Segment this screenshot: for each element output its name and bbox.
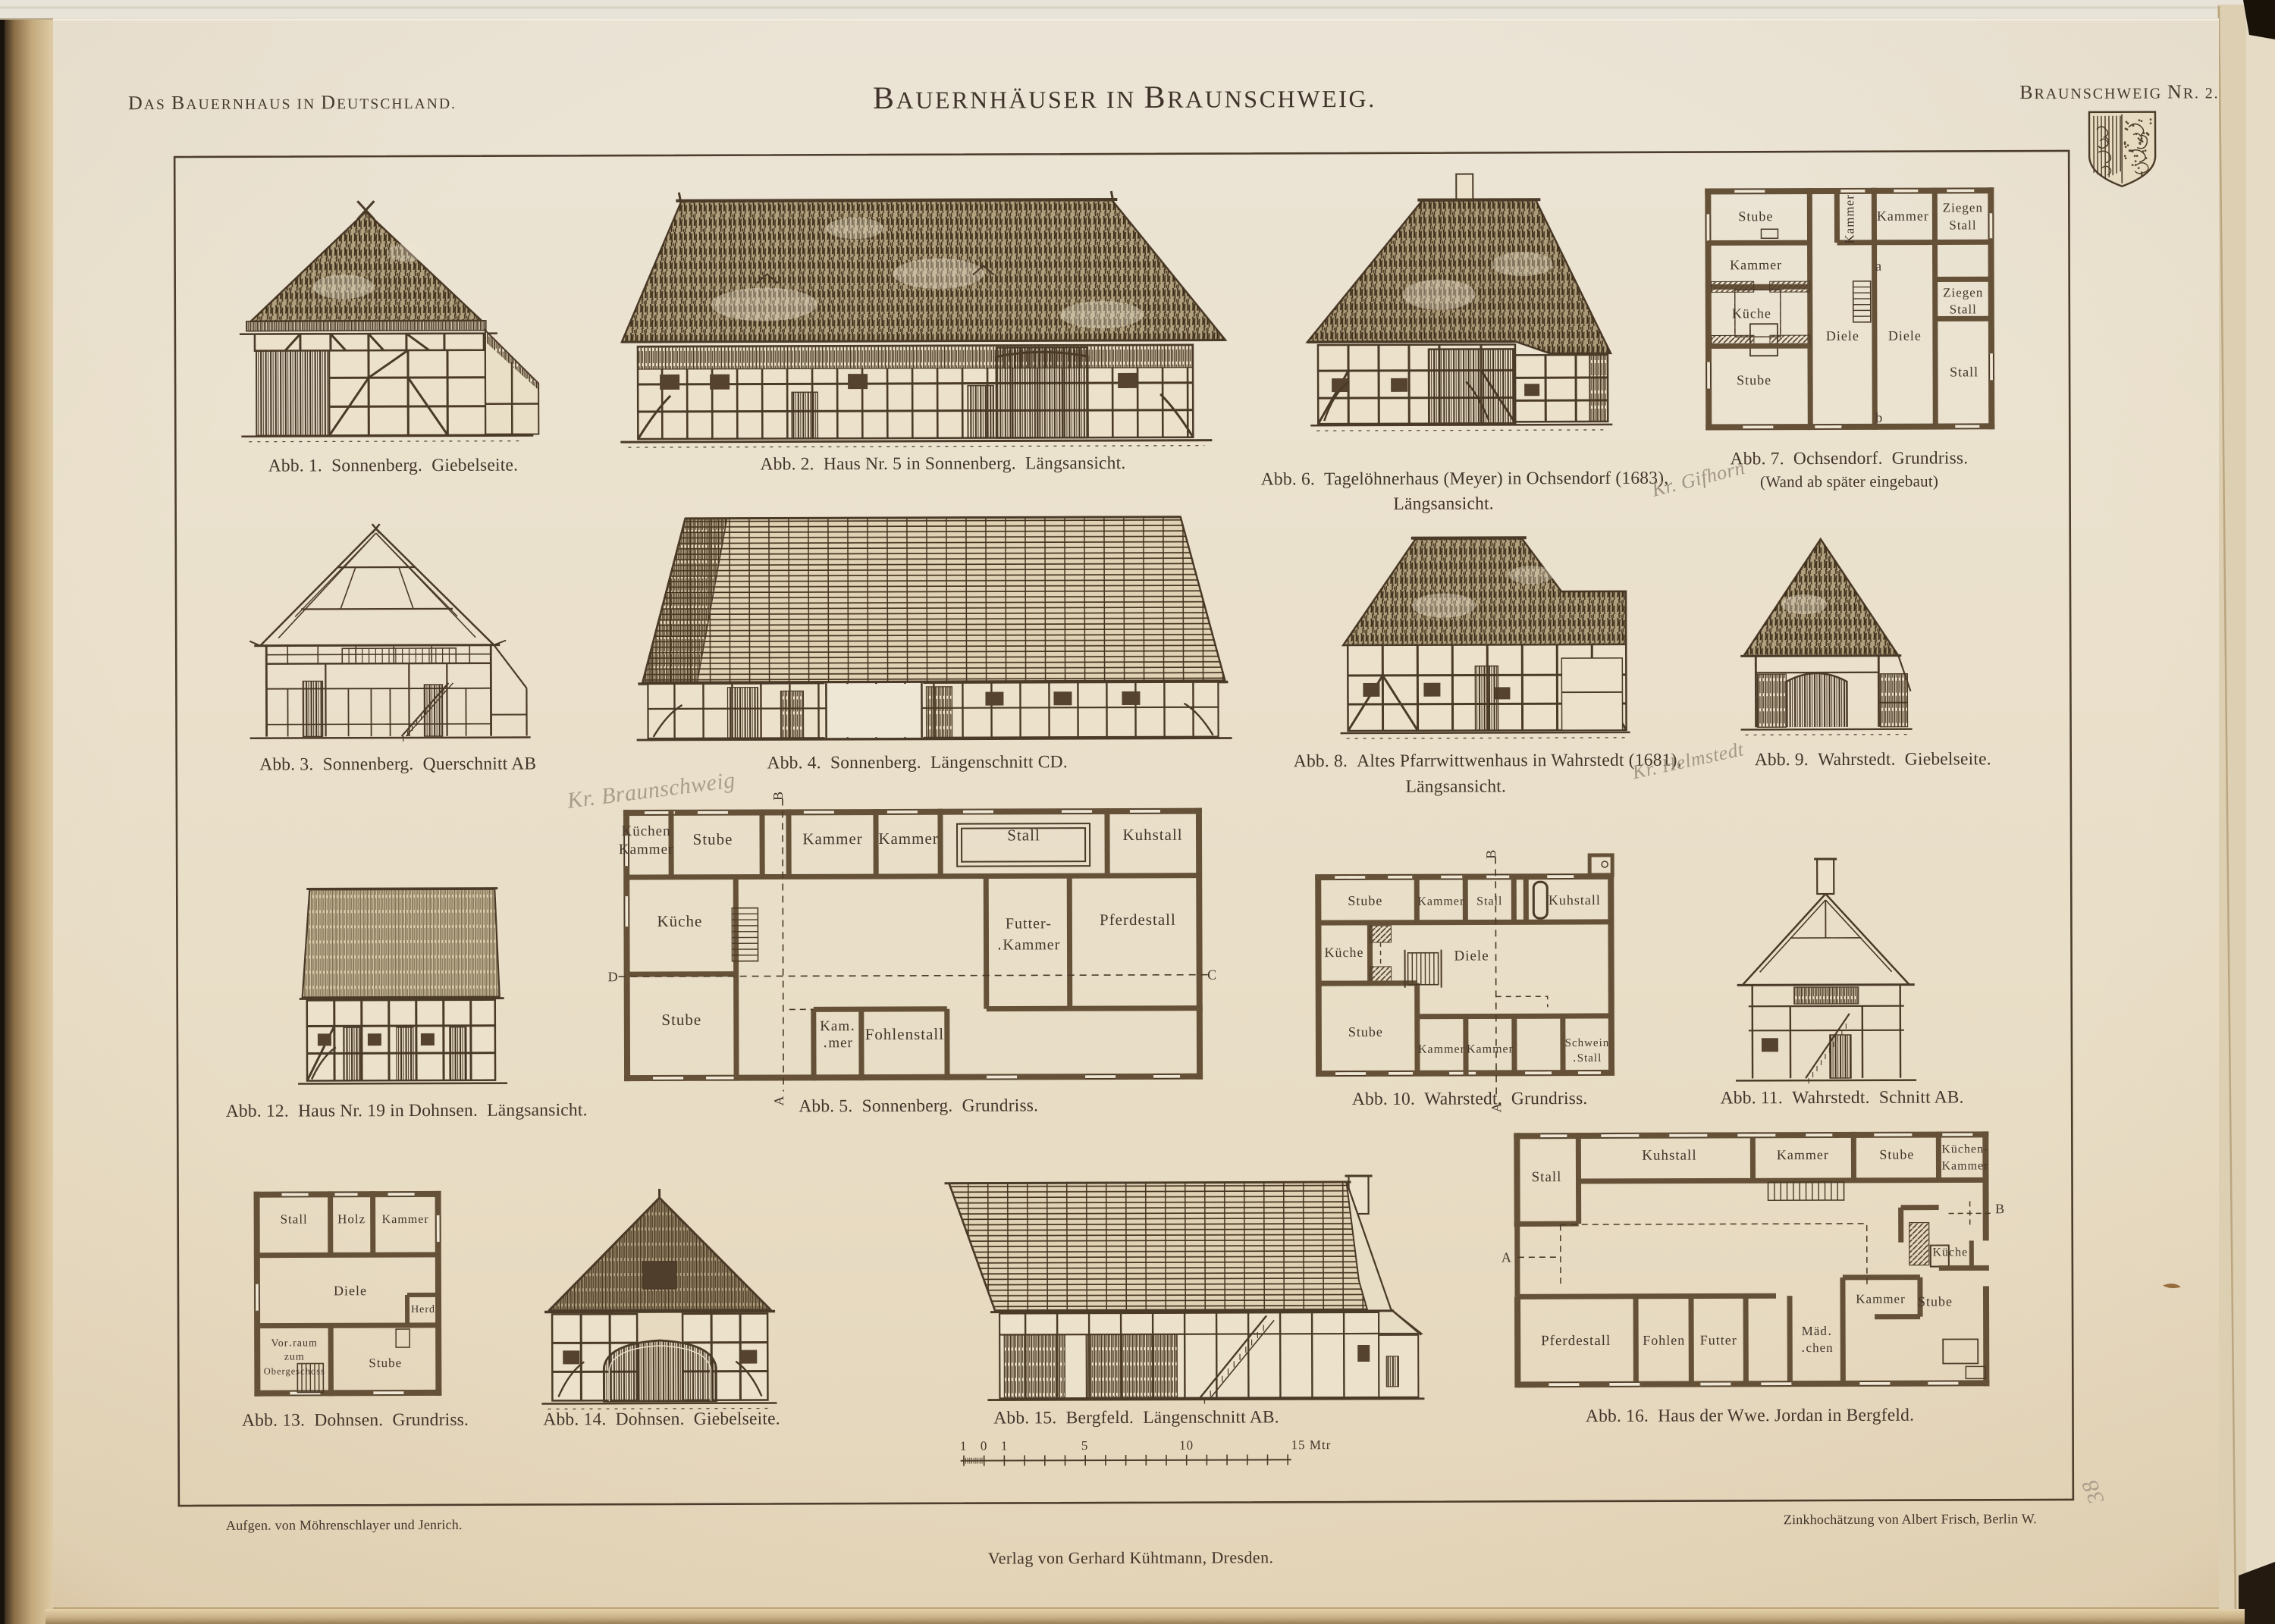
svg-text:Abb. 7. Ochsendorf. Grundris: Abb. 7. Ochsendorf. Grundriss. bbox=[1730, 448, 1968, 469]
svg-text:Abb. 14. Dohnsen. Giebelseit: Abb. 14. Dohnsen. Giebelseite. bbox=[543, 1409, 780, 1429]
svg-text:Stube: Stube bbox=[1918, 1293, 1953, 1309]
svg-text:B: B bbox=[1995, 1201, 2005, 1216]
svg-text:Stube: Stube bbox=[1879, 1147, 1914, 1162]
svg-text:A: A bbox=[771, 1095, 786, 1105]
svg-text:Kammer: Kammer bbox=[1417, 895, 1464, 908]
svg-text:Obergeschoss: Obergeschoss bbox=[264, 1365, 325, 1376]
svg-text:Stube: Stube bbox=[1348, 893, 1382, 908]
svg-text:Stube: Stube bbox=[661, 1011, 701, 1029]
svg-text:B: B bbox=[1483, 849, 1498, 859]
svg-text:Kammer: Kammer bbox=[1941, 1159, 1988, 1172]
svg-text:Stube: Stube bbox=[693, 830, 733, 848]
svg-text:Holz: Holz bbox=[337, 1212, 366, 1226]
svg-text:0: 0 bbox=[981, 1439, 988, 1453]
svg-text:Abb. 2. Haus Nr. 5 in Sonnenb: Abb. 2. Haus Nr. 5 in Sonnenberg. Längsa… bbox=[760, 453, 1125, 475]
svg-text:(Wand ab später eingebaut): (Wand ab später eingebaut) bbox=[1760, 472, 1938, 491]
svg-text:Abb. 11. Wahrstedt. Schnitt: Abb. 11. Wahrstedt. Schnitt AB. bbox=[1721, 1087, 1964, 1108]
svg-text:Diele: Diele bbox=[1454, 948, 1489, 964]
svg-text:Stube: Stube bbox=[369, 1356, 402, 1370]
svg-text:Schwein: Schwein bbox=[1565, 1037, 1610, 1049]
svg-text:a: a bbox=[1875, 259, 1882, 274]
svg-text:1: 1 bbox=[960, 1439, 968, 1453]
svg-text:Kammer: Kammer bbox=[1467, 1042, 1514, 1055]
svg-text:․Stall: ․Stall bbox=[1573, 1052, 1602, 1064]
svg-text:Kuhstall: Kuhstall bbox=[1642, 1148, 1696, 1164]
svg-text:10: 10 bbox=[1179, 1438, 1194, 1453]
svg-text:A: A bbox=[1501, 1249, 1512, 1265]
svg-text:Pferdestall: Pferdestall bbox=[1541, 1333, 1611, 1349]
svg-text:1: 1 bbox=[1001, 1438, 1009, 1453]
svg-text:Kammer: Kammer bbox=[1856, 1292, 1906, 1306]
svg-text:5: 5 bbox=[1081, 1438, 1089, 1453]
svg-text:Kammer: Kammer bbox=[1777, 1147, 1829, 1162]
svg-text:Kammer: Kammer bbox=[382, 1213, 429, 1226]
svg-text:Stall: Stall bbox=[1532, 1169, 1562, 1185]
svg-text:Stube: Stube bbox=[1738, 208, 1773, 224]
svg-text:Abb. 4. Sonnenberg. Längensc: Abb. 4. Sonnenberg. Längenschnitt CD. bbox=[767, 752, 1067, 773]
svg-text:Ziegen: Ziegen bbox=[1943, 200, 1983, 215]
svg-text:Abb. 10. Wahrstedt. Grundris: Abb. 10. Wahrstedt. Grundriss. bbox=[1352, 1089, 1588, 1109]
svg-text:Abb. 15. Bergfeld. Längensch: Abb. 15. Bergfeld. Längenschnitt AB. bbox=[993, 1407, 1279, 1428]
svg-text:D: D bbox=[608, 969, 619, 984]
svg-text:Längsansicht.: Längsansicht. bbox=[1393, 494, 1494, 513]
svg-text:Kam․: Kam․ bbox=[820, 1018, 855, 1034]
svg-text:Stall: Stall bbox=[1950, 302, 1977, 316]
svg-text:Kammer: Kammer bbox=[619, 842, 674, 857]
svg-text:Kuhstall: Kuhstall bbox=[1122, 826, 1182, 844]
svg-text:Diele: Diele bbox=[334, 1283, 367, 1298]
svg-text:Ziegen: Ziegen bbox=[1943, 285, 1983, 299]
svg-text:Abb. 9. Wahrstedt. Giebelsei: Abb. 9. Wahrstedt. Giebelseite. bbox=[1755, 749, 1991, 770]
svg-text:Futter: Futter bbox=[1700, 1332, 1737, 1347]
svg-text:Futter-: Futter- bbox=[1006, 915, 1052, 932]
svg-text:Küche: Küche bbox=[657, 912, 702, 930]
svg-text:Verlag von Gerhard Kühtmann, D: Verlag von Gerhard Kühtmann, Dresden. bbox=[988, 1547, 1274, 1567]
svg-text:․Kammer: ․Kammer bbox=[997, 936, 1061, 953]
svg-text:Zinkhochätzung von Albert Fris: Zinkhochätzung von Albert Frisch, Berlin… bbox=[1784, 1511, 2037, 1527]
svg-text:15 Mtr: 15 Mtr bbox=[1291, 1437, 1332, 1452]
svg-text:Stall: Stall bbox=[281, 1212, 308, 1226]
svg-text:Kammer: Kammer bbox=[1877, 208, 1929, 224]
svg-text:Pferdestall: Pferdestall bbox=[1100, 911, 1176, 929]
svg-text:Stall: Stall bbox=[1476, 895, 1502, 908]
svg-text:Fohlen: Fohlen bbox=[1643, 1333, 1685, 1348]
svg-text:Abb. 8. Altes Pfarrwittwenhau: Abb. 8. Altes Pfarrwittwenhaus in Wahrst… bbox=[1294, 751, 1682, 772]
svg-text:Abb. 16. Haus der Wwe. Jordan: Abb. 16. Haus der Wwe. Jordan in Bergfel… bbox=[1586, 1406, 1914, 1426]
svg-text:Küche: Küche bbox=[1732, 306, 1771, 321]
svg-text:Diele: Diele bbox=[1826, 328, 1859, 343]
svg-text:Abb. 3. Sonnenberg. Querschn: Abb. 3. Sonnenberg. Querschnitt AB bbox=[259, 754, 536, 774]
svg-text:Abb. 13. Dohnsen. Grundriss.: Abb. 13. Dohnsen. Grundriss. bbox=[242, 1410, 469, 1431]
svg-text:Küchen-: Küchen- bbox=[1941, 1143, 1988, 1155]
svg-text:Stall: Stall bbox=[1950, 364, 1978, 379]
svg-text:Kammer: Kammer bbox=[1730, 257, 1782, 272]
svg-text:Stall: Stall bbox=[1949, 218, 1976, 232]
svg-text:Abb. 1. Sonnenberg. Giebelse: Abb. 1. Sonnenberg. Giebelseite. bbox=[268, 456, 519, 476]
svg-text:Kammer: Kammer bbox=[1842, 194, 1856, 244]
svg-text:Diele: Diele bbox=[1888, 328, 1922, 343]
svg-text:Vor․raum: Vor․raum bbox=[271, 1337, 317, 1349]
svg-text:Abb. 6. Tagelöhnerhaus (Meyer: Abb. 6. Tagelöhnerhaus (Meyer) in Ochsen… bbox=[1261, 469, 1669, 490]
svg-text:Fohlenstall: Fohlenstall bbox=[865, 1025, 944, 1043]
svg-text:Kuhstall: Kuhstall bbox=[1549, 892, 1601, 908]
svg-text:Aufgen. von Möhrenschlayer und: Aufgen. von Möhrenschlayer und Jenrich. bbox=[226, 1517, 463, 1533]
svg-text:Küche: Küche bbox=[1932, 1246, 1968, 1259]
svg-text:Kammer: Kammer bbox=[1418, 1043, 1465, 1056]
svg-text:Kammer: Kammer bbox=[802, 829, 863, 848]
svg-text:Küchen: Küchen bbox=[621, 823, 670, 839]
svg-text:Kammer: Kammer bbox=[878, 829, 939, 848]
svg-text:․chen: ․chen bbox=[1801, 1340, 1834, 1355]
svg-text:Mäd․: Mäd․ bbox=[1802, 1324, 1833, 1338]
svg-text:Stall: Stall bbox=[1007, 826, 1040, 844]
svg-text:․mer: ․mer bbox=[823, 1035, 853, 1051]
svg-text:zum: zum bbox=[284, 1351, 305, 1362]
svg-text:Abb. 12. Haus Nr. 19 in Dohns: Abb. 12. Haus Nr. 19 in Dohnsen. Längsan… bbox=[226, 1100, 588, 1121]
svg-text:Herd: Herd bbox=[411, 1304, 435, 1315]
svg-text:Abb. 5. Sonnenberg. Grundris: Abb. 5. Sonnenberg. Grundriss. bbox=[799, 1096, 1038, 1116]
svg-text:Längsansicht.: Längsansicht. bbox=[1406, 776, 1507, 796]
svg-text:Stube: Stube bbox=[1737, 372, 1771, 387]
svg-text:Küche: Küche bbox=[1325, 945, 1364, 960]
svg-text:B: B bbox=[770, 791, 786, 801]
svg-text:Stube: Stube bbox=[1348, 1024, 1383, 1039]
svg-text:b: b bbox=[1875, 410, 1883, 425]
svg-text:C: C bbox=[1207, 967, 1217, 983]
